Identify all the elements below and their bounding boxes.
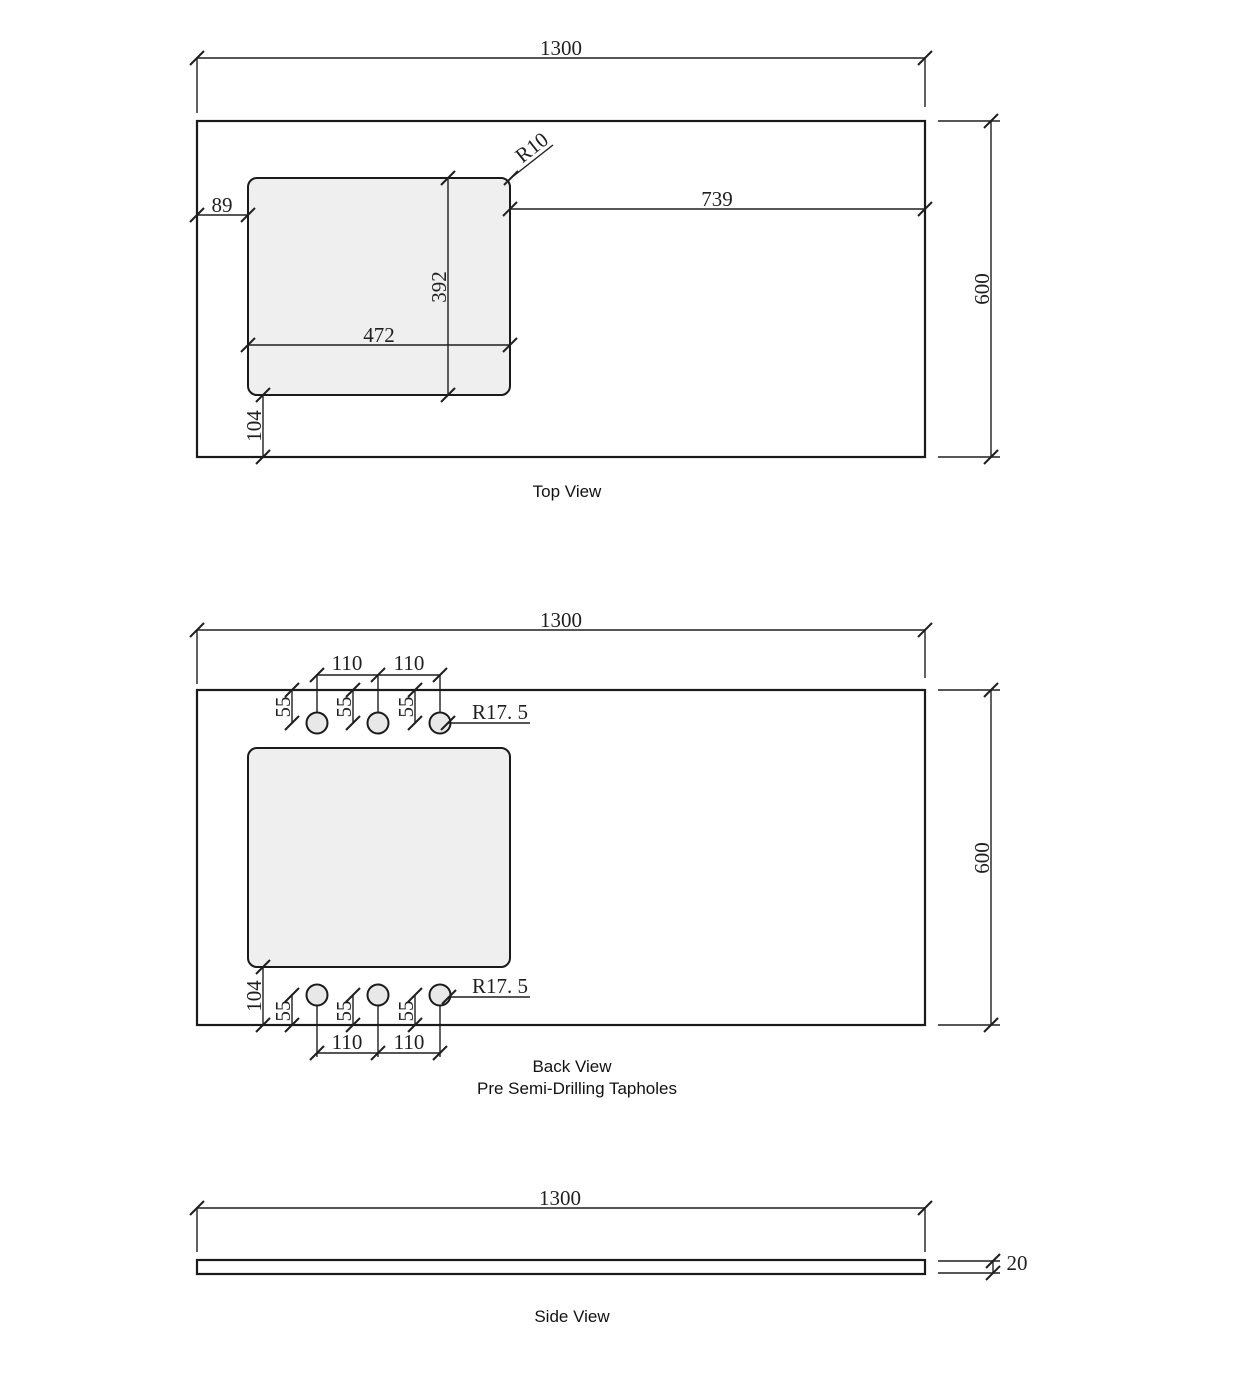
dimension-text: 1300 (540, 608, 582, 632)
side-view: 1300 20 Side View (197, 1186, 1028, 1326)
dimension-text: 55 (332, 697, 356, 718)
dimension-text: 55 (271, 697, 295, 718)
back-view-sublabel: Pre Semi-Drilling Tapholes (477, 1079, 677, 1098)
back-view: 1300 600 110 110 55 55 55 (197, 608, 1000, 1098)
taphole-top-right (430, 713, 451, 734)
dimension-text: 600 (970, 842, 994, 874)
back-dim-depth: 600 (938, 690, 1000, 1025)
side-view-benchtop-outline (197, 1260, 925, 1274)
top-dim-width: 1300 (197, 36, 925, 113)
dimension-text: 472 (363, 323, 395, 347)
dimension-text: 392 (427, 271, 451, 303)
dimension-text: 739 (701, 187, 733, 211)
dimension-text: 110 (332, 651, 363, 675)
dimension-text: 110 (332, 1030, 363, 1054)
dimension-text: R17. 5 (472, 974, 528, 998)
taphole-bottom-middle (368, 985, 389, 1006)
technical-drawing-sheet: 1300 600 89 739 392 472 (0, 0, 1241, 1400)
top-dim-depth: 600 (938, 121, 1000, 457)
dimension-text: 104 (242, 410, 266, 442)
back-view-label: Back View (532, 1057, 612, 1076)
side-dim-thickness: 20 (938, 1251, 1028, 1275)
top-view-sink-cutout (248, 178, 510, 395)
side-view-label: Side View (534, 1307, 610, 1326)
taphole-bottom-right (430, 985, 451, 1006)
top-view-label: Top View (533, 482, 602, 501)
taphole-bottom-left (307, 985, 328, 1006)
dimension-text: 55 (394, 697, 418, 718)
dimension-text: 110 (394, 651, 425, 675)
back-view-sink-cutout (248, 748, 510, 967)
taphole-top-middle (368, 713, 389, 734)
side-dim-width: 1300 (197, 1186, 925, 1252)
dimension-text: 600 (970, 273, 994, 305)
dimension-text: 20 (1007, 1251, 1028, 1275)
dimension-text: 1300 (540, 36, 582, 60)
dimension-text: R17. 5 (472, 700, 528, 724)
dimension-text: 55 (394, 1001, 418, 1022)
dimension-text: 110 (394, 1030, 425, 1054)
dimension-text: 89 (212, 193, 233, 217)
taphole-top-left (307, 713, 328, 734)
top-view: 1300 600 89 739 392 472 (197, 36, 1000, 501)
dimension-text: 55 (271, 1001, 295, 1022)
back-dim-width: 1300 (197, 608, 925, 684)
dimension-text: 1300 (539, 1186, 581, 1210)
dimension-text: 104 (242, 980, 266, 1012)
drawing-svg: 1300 600 89 739 392 472 (0, 0, 1241, 1400)
dimension-text: 55 (332, 1001, 356, 1022)
